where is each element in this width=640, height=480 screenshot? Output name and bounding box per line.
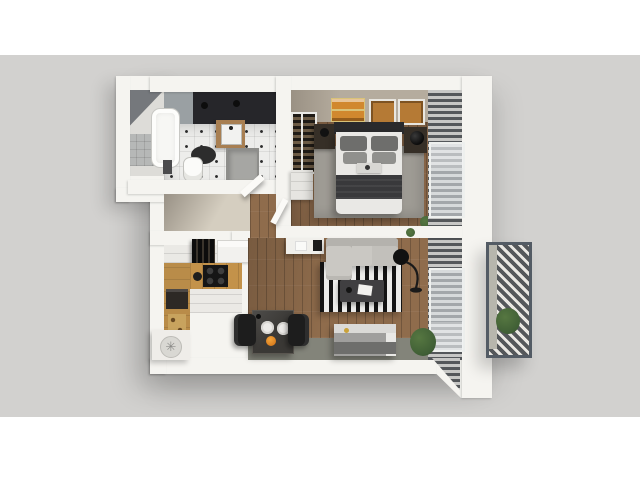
kettle: [193, 272, 202, 281]
south-wall: [150, 358, 436, 374]
bed-blanket: [336, 175, 402, 199]
screenshot-root: ✳: [0, 0, 640, 480]
small-plant: [406, 228, 415, 237]
bottle: [256, 314, 261, 319]
white-appliance: [217, 240, 249, 263]
oven: [166, 289, 188, 309]
arc-floor-lamp: [392, 248, 426, 296]
wall-frame: [331, 110, 365, 122]
vent-icon: ✳: [166, 341, 177, 354]
bedroom-living-divider-wall: [276, 226, 462, 238]
bathtub: [151, 108, 180, 168]
cup: [365, 165, 370, 170]
shelf-divider: [301, 112, 303, 170]
coffee-table-bowl: [346, 287, 352, 293]
kitchen-lower-cabinets: [190, 289, 242, 313]
balcony-concrete-edge: [489, 245, 497, 349]
window-glass-bedroom: [429, 142, 465, 218]
table-lamp-right: [410, 131, 424, 145]
pumpkin: [266, 336, 276, 346]
pendant-light: [233, 100, 240, 107]
towel-rail: [163, 160, 172, 174]
desk-notebook: [313, 240, 322, 251]
wine-rack: [192, 239, 215, 263]
sofa-chaise: [326, 238, 352, 280]
hall-shadow: [164, 194, 252, 231]
vent-medallion: ✳: [160, 336, 182, 358]
pillow: [340, 136, 367, 151]
living-plant: [410, 328, 436, 356]
bottom-white-band: [0, 417, 640, 480]
desk-pad: [295, 241, 307, 251]
table-lamp-left: [320, 128, 329, 137]
tv-console-front: [334, 342, 396, 354]
balcony-plant: [496, 308, 520, 334]
pillow: [371, 136, 398, 151]
coffee-table-book: [357, 284, 372, 296]
top-white-band: [0, 0, 640, 55]
wall-frame: [331, 98, 365, 110]
console-decor: [344, 328, 349, 333]
dining-chair-left: [234, 314, 256, 346]
dresser: [291, 170, 313, 200]
pendant-light: [201, 102, 208, 109]
dining-chair-right: [288, 314, 309, 346]
faucet: [229, 126, 233, 130]
plate: [261, 321, 274, 334]
cooktop: [203, 265, 228, 287]
